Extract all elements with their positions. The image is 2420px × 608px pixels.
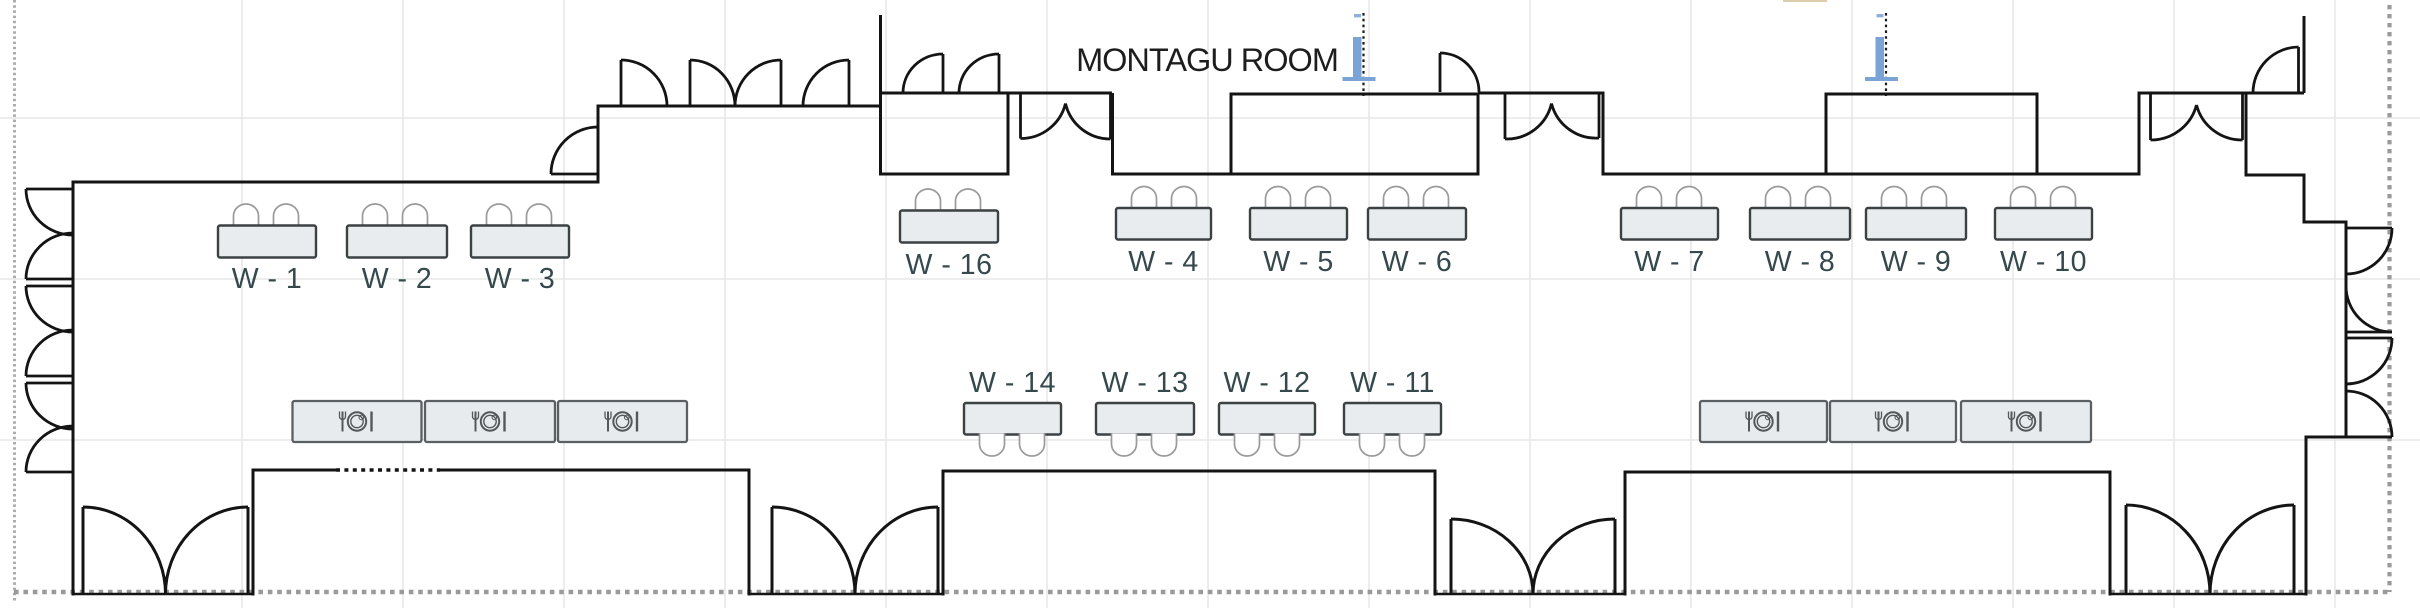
svg-text:W - 16: W - 16 xyxy=(906,249,993,281)
svg-text:W - 7: W - 7 xyxy=(1634,246,1705,278)
svg-text:W - 3: W - 3 xyxy=(485,263,556,295)
svg-text:W - 10: W - 10 xyxy=(2000,246,2087,278)
svg-text:W - 5: W - 5 xyxy=(1263,246,1334,278)
svg-text:W - 2: W - 2 xyxy=(362,263,433,295)
svg-text:W - 11: W - 11 xyxy=(1350,367,1435,399)
svg-text:W - 8: W - 8 xyxy=(1765,246,1836,278)
svg-text:W - 14: W - 14 xyxy=(969,367,1056,399)
svg-text:W - 13: W - 13 xyxy=(1102,367,1189,399)
svg-text:W - 12: W - 12 xyxy=(1224,367,1311,399)
svg-text:W - 1: W - 1 xyxy=(232,263,303,295)
svg-text:W - 6: W - 6 xyxy=(1382,246,1453,278)
svg-text:W - 9: W - 9 xyxy=(1881,246,1952,278)
svg-text:MONTAGU ROOM: MONTAGU ROOM xyxy=(1076,42,1338,78)
svg-text:W - 4: W - 4 xyxy=(1128,246,1199,278)
